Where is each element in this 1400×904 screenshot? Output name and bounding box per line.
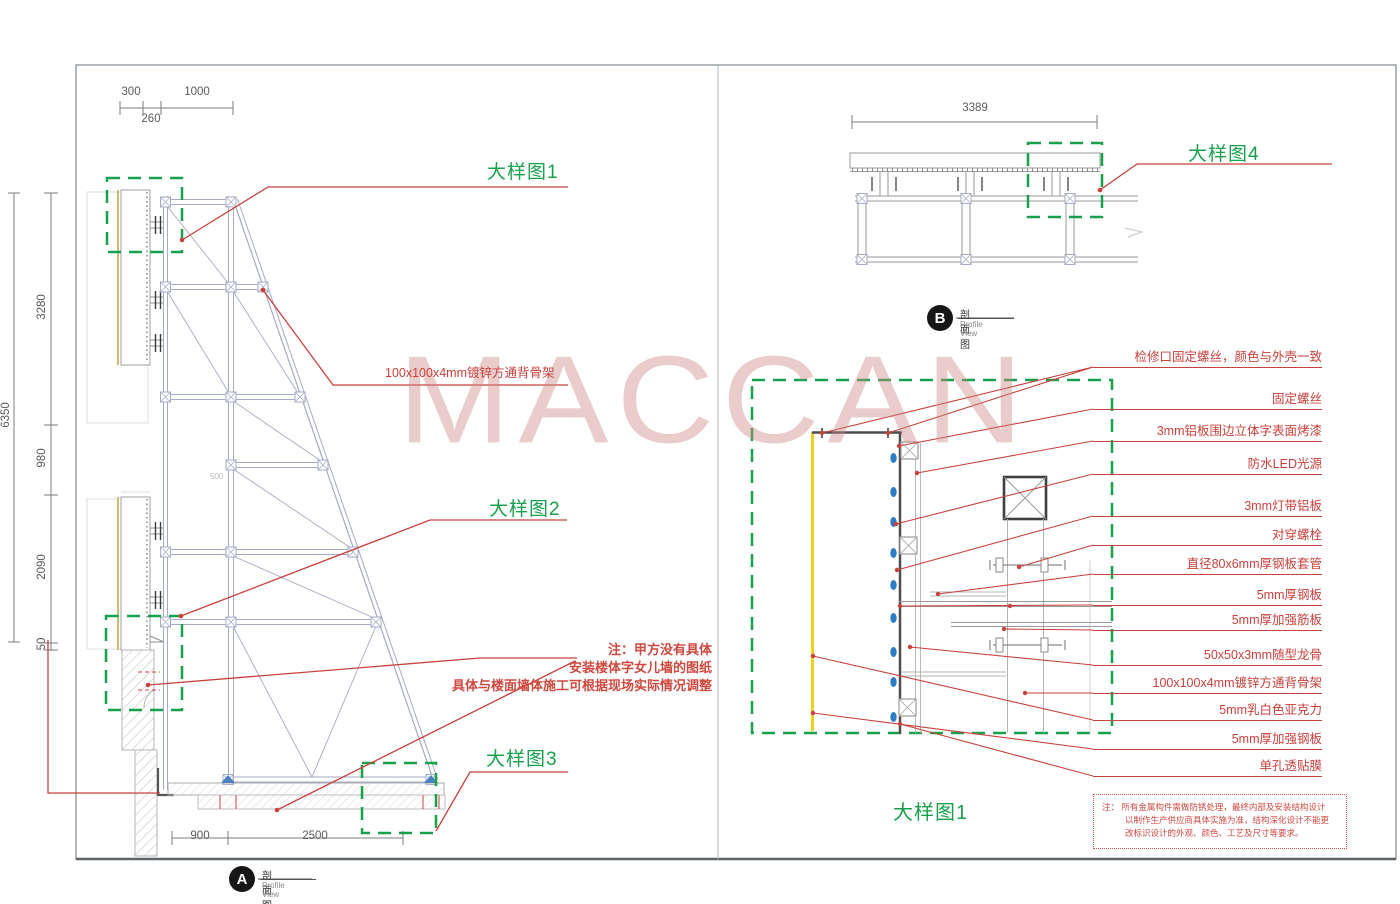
- site-note-line-1: 注：甲方没有具体: [422, 639, 712, 658]
- dim-top-260: 260: [131, 113, 171, 125]
- part-label-aluminum-edge: 3mm铝板围边立体字表面烤漆: [1093, 424, 1322, 442]
- dim-total-6350: 6350: [0, 385, 12, 445]
- dim-seg-980: 980: [36, 428, 48, 488]
- detail-label-1: 大样图1: [487, 157, 559, 184]
- detail-box-4: [1028, 143, 1102, 217]
- general-note-box: 注： 所有金属构件需做防锈处理，最终内部及安装结构设计 以制作生产供应商具体实施…: [1093, 794, 1347, 849]
- general-note-line-3: 改标识设计的外观、颜色、工艺及尺寸等要求。: [1102, 827, 1338, 840]
- dim-top-3389: 3389: [950, 102, 1000, 114]
- detail1-drawing: [812, 428, 1112, 734]
- parapet-and-floor-slab: [122, 650, 445, 856]
- site-note-line-3: 具体与楼面墙体施工可根据现场实际情况调整: [422, 675, 712, 694]
- part-label-led-strip-plate: 3mm灯带铝板: [1093, 499, 1322, 517]
- drawing-sheet: MACCAN 300 1000 260 6350 3280 980 2090 5…: [0, 0, 1400, 904]
- part-label-reinforced-plate: 5mm厚加强钢板: [1093, 732, 1322, 750]
- detail-boxes-left: [106, 178, 436, 833]
- view-marker-b-title-en: Profile View: [960, 320, 983, 338]
- part-label-profile-keel: 50x50x3mm随型龙骨: [1093, 648, 1322, 666]
- sign-panel-upper: [87, 190, 164, 423]
- general-note-line-2: 以制作生产供应商具体实施为准，结构深化设计不能更: [1102, 814, 1338, 827]
- detail1-title: 大样图1: [893, 796, 968, 825]
- led-clips: [890, 453, 896, 722]
- dim-bottom-2500: 2500: [287, 830, 343, 842]
- part-label-access-screw: 检修口固定螺丝，颜色与外壳一致: [1093, 350, 1322, 368]
- dim-seg-2090: 2090: [36, 537, 48, 597]
- detail-label-4: 大样图4: [1188, 139, 1260, 166]
- top-view-structure: [850, 153, 1142, 265]
- part-label-through-bolt: 对穿螺栓: [1093, 528, 1322, 546]
- detail-label-3: 大样图3: [486, 744, 558, 771]
- truss-structure: [161, 196, 438, 790]
- part-label-fixing-screw: 固定螺丝: [1093, 392, 1322, 410]
- detail-label-2: 大样图2: [489, 494, 561, 521]
- top-view-dimension: [852, 115, 1097, 129]
- view-marker-a-letter: A: [229, 866, 255, 892]
- part-label-steel-sleeve: 直径80x6mm厚钢板套管: [1093, 557, 1322, 575]
- part-label-backbone-frame: 100x100x4mm镀锌方通背骨架: [1093, 676, 1322, 694]
- callout-backbone-frame: 100x100x4mm镀锌方通背骨架: [385, 362, 555, 381]
- view-marker-a-title-en: Profile View: [262, 881, 285, 899]
- general-note-line-1: 注： 所有金属构件需做防锈处理，最终内部及安装结构设计: [1102, 801, 1338, 814]
- dim-seg-3280: 3280: [36, 277, 48, 337]
- part-label-stiffener-plate: 5mm厚加强筋板: [1093, 613, 1322, 631]
- dim-bottom-900: 900: [178, 830, 222, 842]
- dim-top-1000: 1000: [172, 86, 222, 98]
- watermark: MACCAN: [398, 336, 1031, 465]
- detail4-leader: [1098, 164, 1332, 192]
- part-label-steel-plate: 5mm厚钢板: [1093, 588, 1322, 606]
- dim-top-300: 300: [111, 86, 151, 98]
- dim-seg-50: 50: [36, 614, 48, 674]
- site-note-line-2: 安装楼体字女儿墙的图纸: [422, 657, 712, 676]
- left-vertical-dimension-lines: [8, 193, 58, 651]
- sign-panel-lower: [87, 492, 164, 650]
- part-label-acrylic: 5mm乳白色亚克力: [1093, 703, 1322, 721]
- view-marker-b-letter: B: [927, 305, 953, 331]
- part-label-led-source: 防水LED光源: [1093, 457, 1322, 475]
- dim-panel-500: 500: [210, 472, 223, 481]
- part-label-perforated-film: 单孔透贴膜: [1093, 759, 1322, 777]
